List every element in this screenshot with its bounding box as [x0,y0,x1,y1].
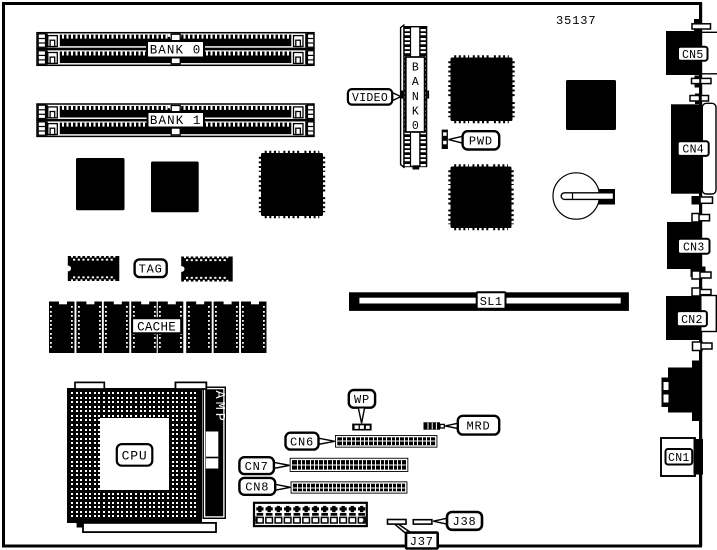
svg-text:K: K [412,105,419,118]
svg-text:SL1: SL1 [480,295,503,309]
svg-text:CN4: CN4 [682,144,704,157]
svg-text:J37: J37 [410,535,434,549]
svg-text:A: A [412,76,419,89]
svg-text:MRD: MRD [466,420,490,434]
svg-text:BANK 1: BANK 1 [150,114,202,128]
svg-text:J38: J38 [452,515,476,529]
svg-text:BANK 0: BANK 0 [150,44,202,58]
svg-text:CN3: CN3 [683,241,705,254]
svg-text:TAG: TAG [139,263,163,277]
svg-text:CACHE: CACHE [137,320,176,334]
svg-text:CN7: CN7 [245,460,269,474]
svg-text:CN5: CN5 [682,49,704,62]
svg-text:CN6: CN6 [290,435,314,449]
svg-text:35137: 35137 [556,14,597,28]
svg-text:N: N [412,91,419,104]
svg-text:WP: WP [354,393,370,407]
svg-text:0: 0 [412,120,419,133]
svg-text:CN2: CN2 [681,314,703,327]
svg-text:AMP: AMP [211,391,226,424]
svg-text:B: B [412,62,419,75]
svg-text:PWD: PWD [469,135,493,149]
svg-text:VIDEO: VIDEO [352,92,388,105]
svg-text:CN8: CN8 [245,481,269,495]
svg-text:CN1: CN1 [668,452,690,465]
svg-text:CPU: CPU [122,449,148,464]
